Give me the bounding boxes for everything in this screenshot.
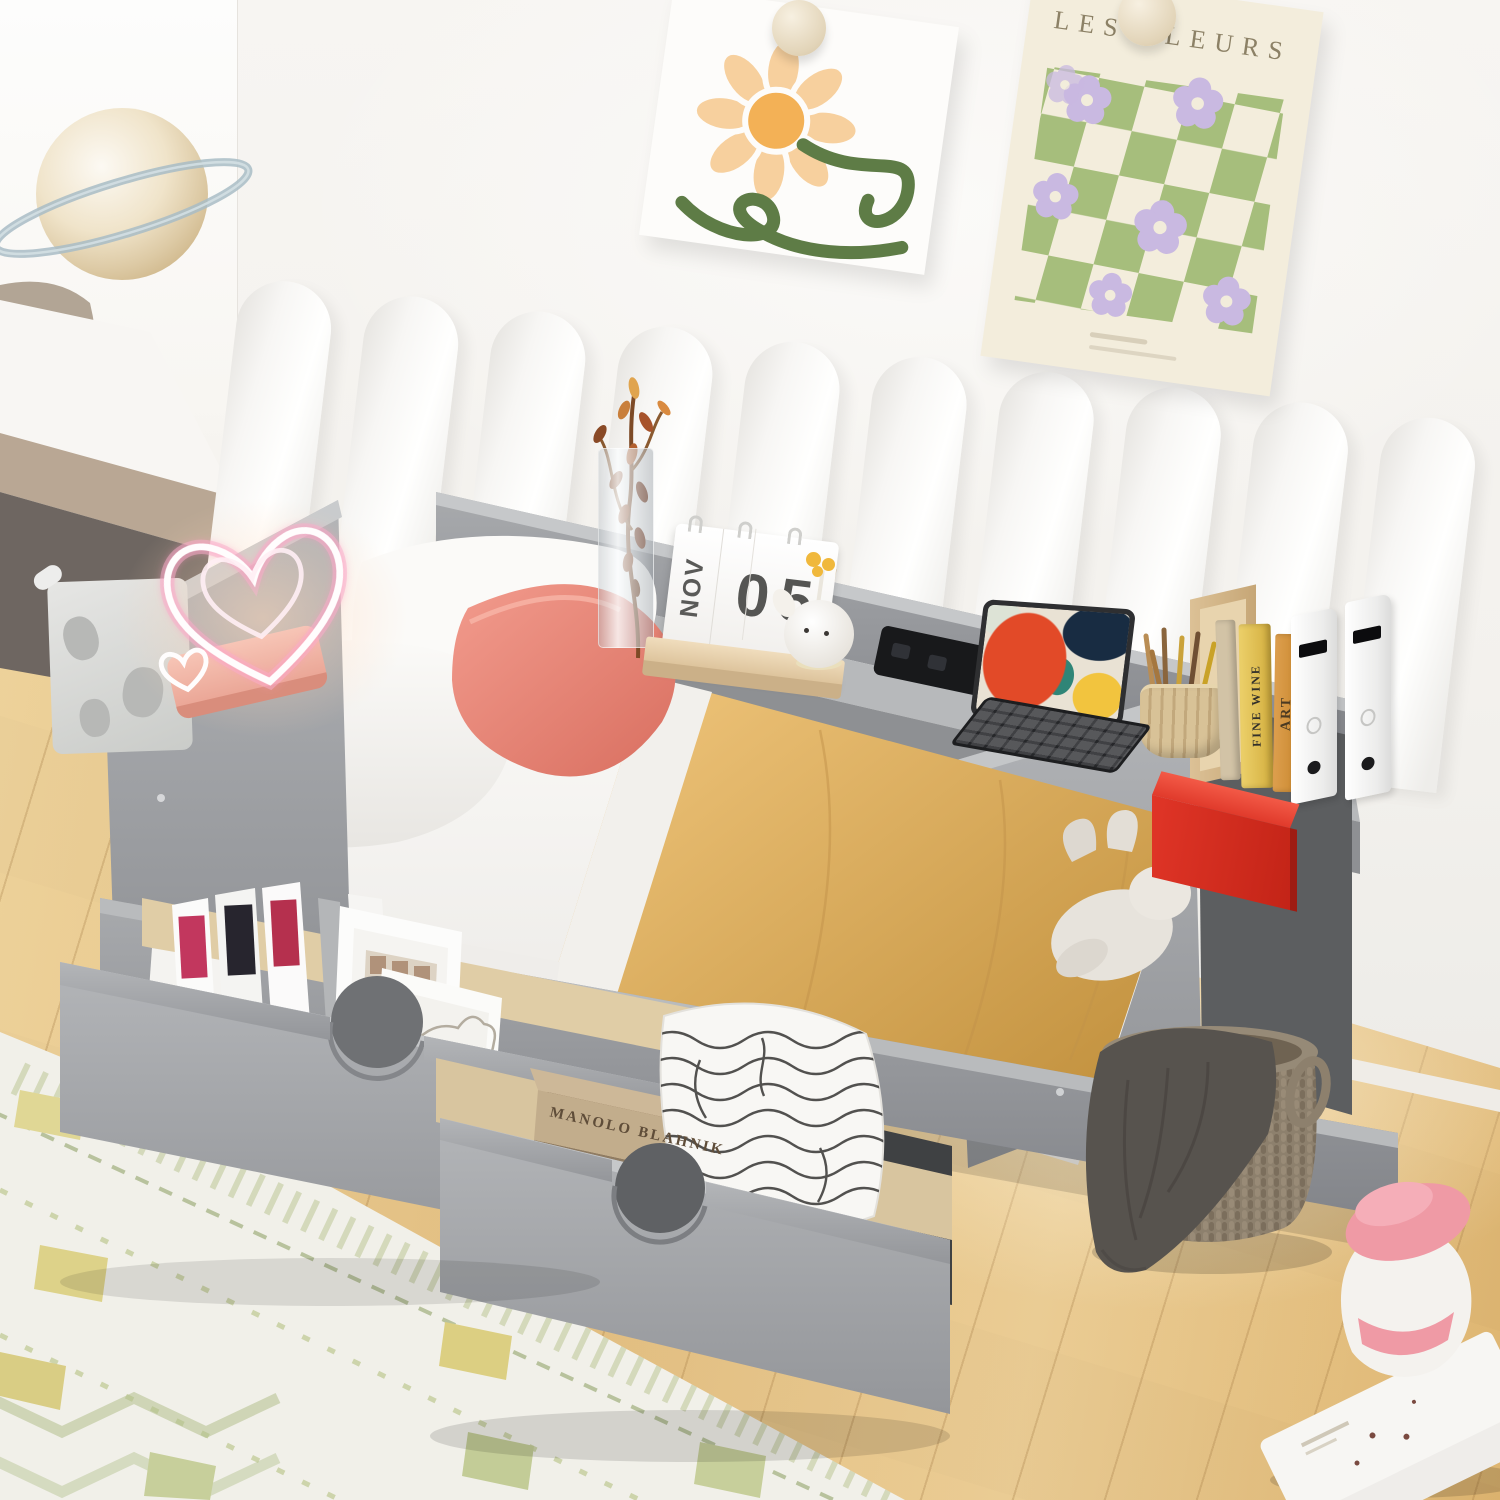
yellow-flower — [822, 558, 835, 571]
wicker-basket — [1086, 1026, 1332, 1274]
binder-finger-hole — [1362, 756, 1375, 772]
binder-grommet — [1307, 716, 1322, 736]
bunny-figurine — [766, 544, 870, 672]
figurine-eye — [824, 631, 829, 636]
calendar-ring-icon — [737, 521, 753, 540]
book-spine-fine-wine: FINE WINE — [1239, 624, 1274, 789]
heart-lamp — [142, 493, 374, 718]
drawer-shadow — [430, 1410, 950, 1462]
binder-label — [1353, 625, 1381, 644]
binder-label — [1299, 639, 1327, 658]
tablet — [975, 596, 1155, 776]
yellow-flower — [812, 566, 823, 577]
small-heart-icon — [160, 649, 210, 693]
bedroom-product-photo: LES FLEURS — [0, 0, 1500, 1500]
yellow-flower — [806, 552, 821, 567]
drawer-shadow — [60, 1258, 600, 1306]
calendar-ring-icon — [688, 515, 704, 534]
drawer-handle-cutout — [331, 976, 423, 1068]
bunny-print — [78, 697, 112, 738]
office-binder — [1345, 593, 1391, 801]
figurine-eye — [804, 628, 809, 633]
bunny-print — [58, 612, 103, 664]
office-binder — [1291, 607, 1337, 805]
binder-grommet — [1361, 707, 1376, 727]
calendar-ring-icon — [787, 527, 803, 546]
book-title: FINE WINE — [1247, 624, 1265, 788]
calendar-month: NOV — [674, 556, 710, 619]
red-box-side — [1290, 828, 1297, 912]
binder-finger-hole — [1308, 760, 1321, 776]
